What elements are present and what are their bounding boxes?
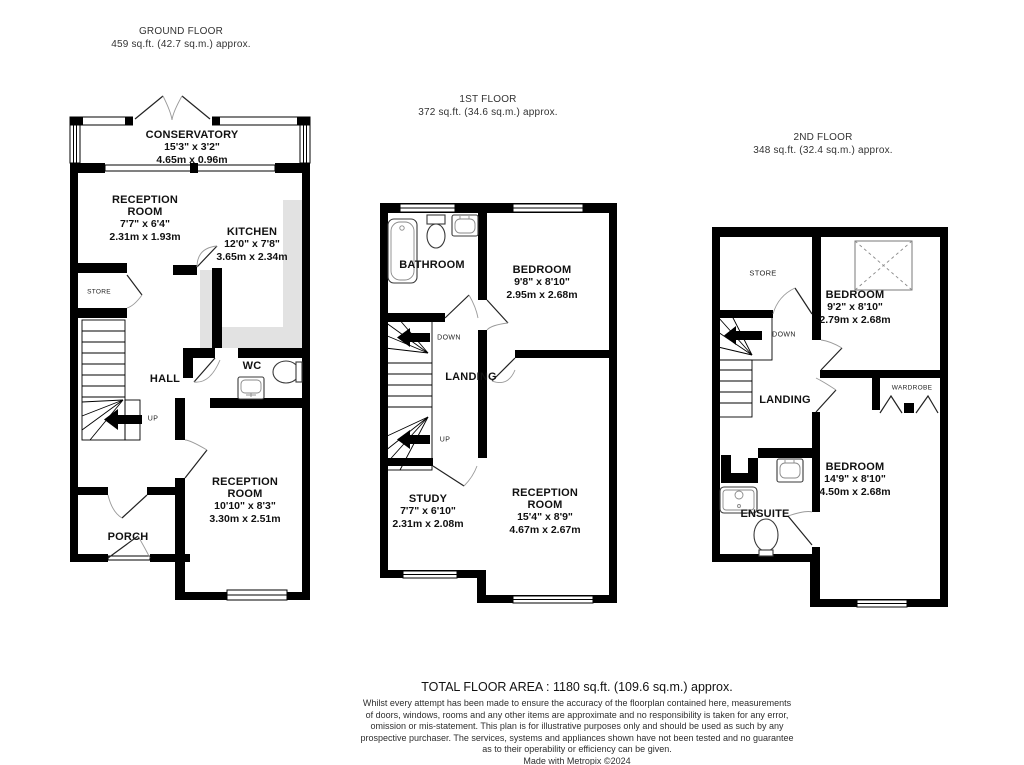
up-arrow-icon [104, 409, 142, 430]
ground-floor-title: GROUND FLOOR 459 sq.ft. (42.7 sq.m.) app… [61, 25, 301, 51]
room-label-store-ground: STORE [87, 289, 111, 296]
metropix-credit: Made with Metropix ©2024 [337, 756, 817, 765]
stairs-up-label-first: UP [440, 437, 451, 444]
room-label-study: STUDY 7'7" x 6'10" 2.31m x 2.08m [392, 493, 463, 531]
first-floor-title: 1ST FLOOR 372 sq.ft. (34.6 sq.m.) approx… [358, 93, 618, 119]
room-label-porch: PORCH [108, 531, 149, 543]
floor-area-text: 372 sq.ft. (34.6 sq.m.) approx. [358, 106, 618, 119]
total-floor-area: TOTAL FLOOR AREA : 1180 sq.ft. (109.6 sq… [337, 680, 817, 695]
wc-sink-fixture [238, 377, 264, 399]
first-stairs [385, 318, 432, 470]
toilet-fixture [427, 215, 445, 248]
second-floor-title: 2ND FLOOR 348 sq.ft. (32.4 sq.m.) approx… [693, 131, 953, 157]
floor-title-text: 2ND FLOOR [693, 131, 953, 144]
room-label-wardrobe: WARDROBE [892, 385, 932, 392]
second-floor-plan [700, 220, 960, 615]
ground-stairs [82, 320, 142, 440]
room-label-hall: HALL [150, 373, 180, 385]
floor-area-text: 348 sq.ft. (32.4 sq.m.) approx. [693, 144, 953, 157]
room-label-bedroom1-second: BEDROOM 9'2" x 8'10" 2.79m x 2.68m [819, 289, 890, 327]
room-label-conservatory: CONSERVATORY 15'3" x 3'2" 4.65m x 0.96m [146, 129, 239, 167]
velux-restricted-height-box [855, 241, 912, 290]
bath-fixture [388, 219, 417, 283]
floor-area-text: 459 sq.ft. (42.7 sq.m.) approx. [61, 38, 301, 51]
disclaimer-line: of doors, windows, rooms and any other i… [337, 710, 817, 722]
disclaimer-line: omission or mis-statement. This plan is … [337, 721, 817, 733]
stairs-down-label-first: DOWN [437, 335, 461, 342]
footer: TOTAL FLOOR AREA : 1180 sq.ft. (109.6 sq… [337, 680, 817, 765]
room-label-store-second: STORE [749, 269, 776, 278]
floor-title-text: 1ST FLOOR [358, 93, 618, 106]
room-label-wc: WC [243, 360, 262, 372]
sink-fixture [452, 215, 478, 236]
room-label-bedroom2-second: BEDROOM 14'9" x 8'10" 4.50m x 2.68m [819, 461, 890, 499]
room-label-reception2: RECEPTION ROOM 10'10" x 8'3" 3.30m x 2.5… [190, 476, 300, 526]
room-label-bedroom-first: BEDROOM 9'8" x 8'10" 2.95m x 2.68m [506, 264, 577, 302]
room-label-kitchen: KITCHEN 12'0" x 7'8" 3.65m x 2.34m [216, 226, 287, 264]
room-label-bathroom: BATHROOM [399, 259, 465, 271]
room-label-landing-second: LANDING [759, 394, 811, 406]
ensuite-toilet-fixture [754, 519, 778, 556]
room-label-reception1: RECEPTION ROOM 7'7" x 6'4" 2.31m x 1.93m [93, 194, 197, 244]
first-doors [433, 295, 515, 486]
wardrobe-bifold-doors [880, 396, 938, 413]
ensuite-basin-fixture [777, 459, 803, 482]
room-label-landing-first: LANDING [445, 371, 497, 383]
disclaimer-line: as to their operability or efficiency ca… [337, 744, 817, 756]
floorplan-page: GROUND FLOOR 459 sq.ft. (42.7 sq.m.) app… [0, 0, 1024, 765]
stairs-down-label-second: DOWN [772, 332, 796, 339]
stairs-up-label-ground: UP [148, 416, 159, 423]
floor-title-text: GROUND FLOOR [61, 25, 301, 38]
down-arrow-icon [397, 328, 430, 347]
disclaimer-line: prospective purchaser. The services, sys… [337, 733, 817, 745]
wc-toilet-fixture [273, 361, 302, 383]
room-label-reception-first: RECEPTION ROOM 15'4" x 8'9" 4.67m x 2.67… [490, 487, 600, 537]
room-label-ensuite: ENSUITE [740, 508, 789, 520]
down-arrow-icon [724, 326, 762, 345]
first-floor-plan [370, 195, 630, 610]
disclaimer-line: Whilst every attempt has been made to en… [337, 698, 817, 710]
